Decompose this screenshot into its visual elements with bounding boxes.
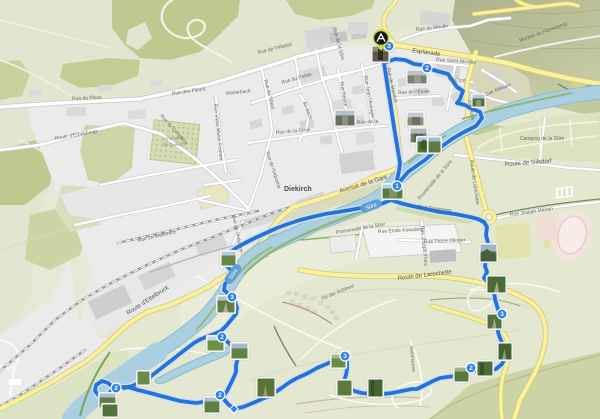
svg-text:Rue du Floss: Rue du Floss	[72, 95, 102, 102]
svg-text:Camping de la Sûre: Camping de la Sûre	[520, 136, 564, 142]
svg-text:2: 2	[469, 365, 473, 372]
svg-text:1: 1	[395, 183, 399, 190]
svg-text:Cimetière: Cimetière	[163, 136, 183, 141]
svg-text:2: 2	[425, 65, 429, 72]
svg-text:2: 2	[218, 392, 222, 399]
svg-text:2: 2	[220, 334, 224, 341]
svg-text:2: 2	[114, 385, 118, 392]
svg-text:3: 3	[387, 43, 391, 50]
svg-text:3: 3	[500, 311, 504, 318]
svg-text:Rue de l'Étoile: Rue de l'Étoile	[398, 88, 431, 96]
svg-text:de Diekirch: de Diekirch	[163, 142, 186, 147]
svg-text:3: 3	[343, 353, 347, 360]
svg-text:Diekirch: Diekirch	[284, 186, 312, 193]
svg-text:3: 3	[230, 294, 234, 301]
